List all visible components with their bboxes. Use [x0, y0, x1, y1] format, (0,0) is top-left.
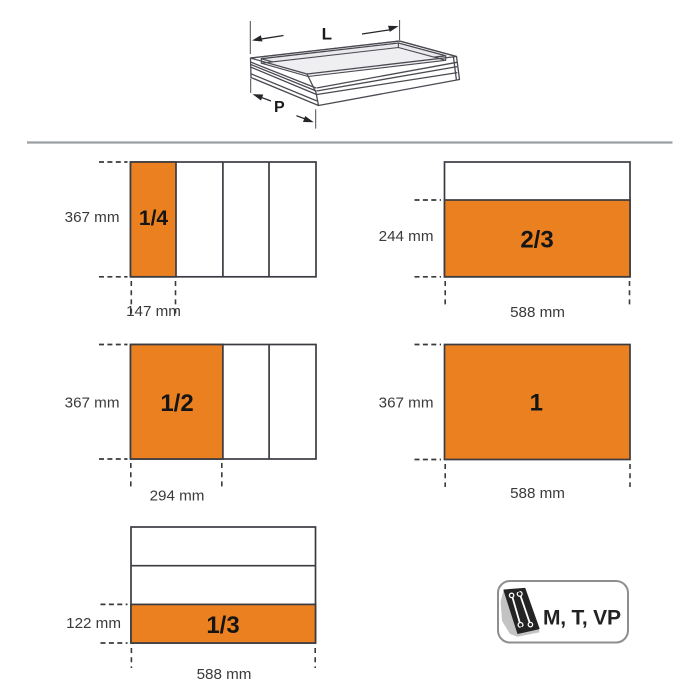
svg-text:367 mm: 367 mm — [379, 395, 434, 412]
svg-text:L: L — [322, 25, 332, 44]
svg-text:122 mm: 122 mm — [66, 615, 121, 632]
svg-text:588 mm: 588 mm — [510, 304, 565, 321]
svg-text:1/2: 1/2 — [160, 390, 193, 417]
svg-text:294 mm: 294 mm — [150, 488, 205, 505]
svg-text:244 mm: 244 mm — [379, 228, 434, 245]
svg-text:1/3: 1/3 — [206, 612, 239, 639]
svg-text:367 mm: 367 mm — [65, 209, 120, 226]
svg-text:P: P — [274, 99, 285, 116]
svg-text:367 mm: 367 mm — [65, 395, 120, 412]
svg-text:M, T, VP: M, T, VP — [543, 606, 621, 629]
svg-text:588 mm: 588 mm — [510, 485, 565, 502]
svg-text:588 mm: 588 mm — [197, 666, 252, 683]
svg-text:1: 1 — [530, 389, 543, 416]
svg-text:147 mm: 147 mm — [126, 303, 181, 320]
svg-text:1/4: 1/4 — [139, 207, 169, 230]
svg-text:2/3: 2/3 — [520, 226, 553, 253]
